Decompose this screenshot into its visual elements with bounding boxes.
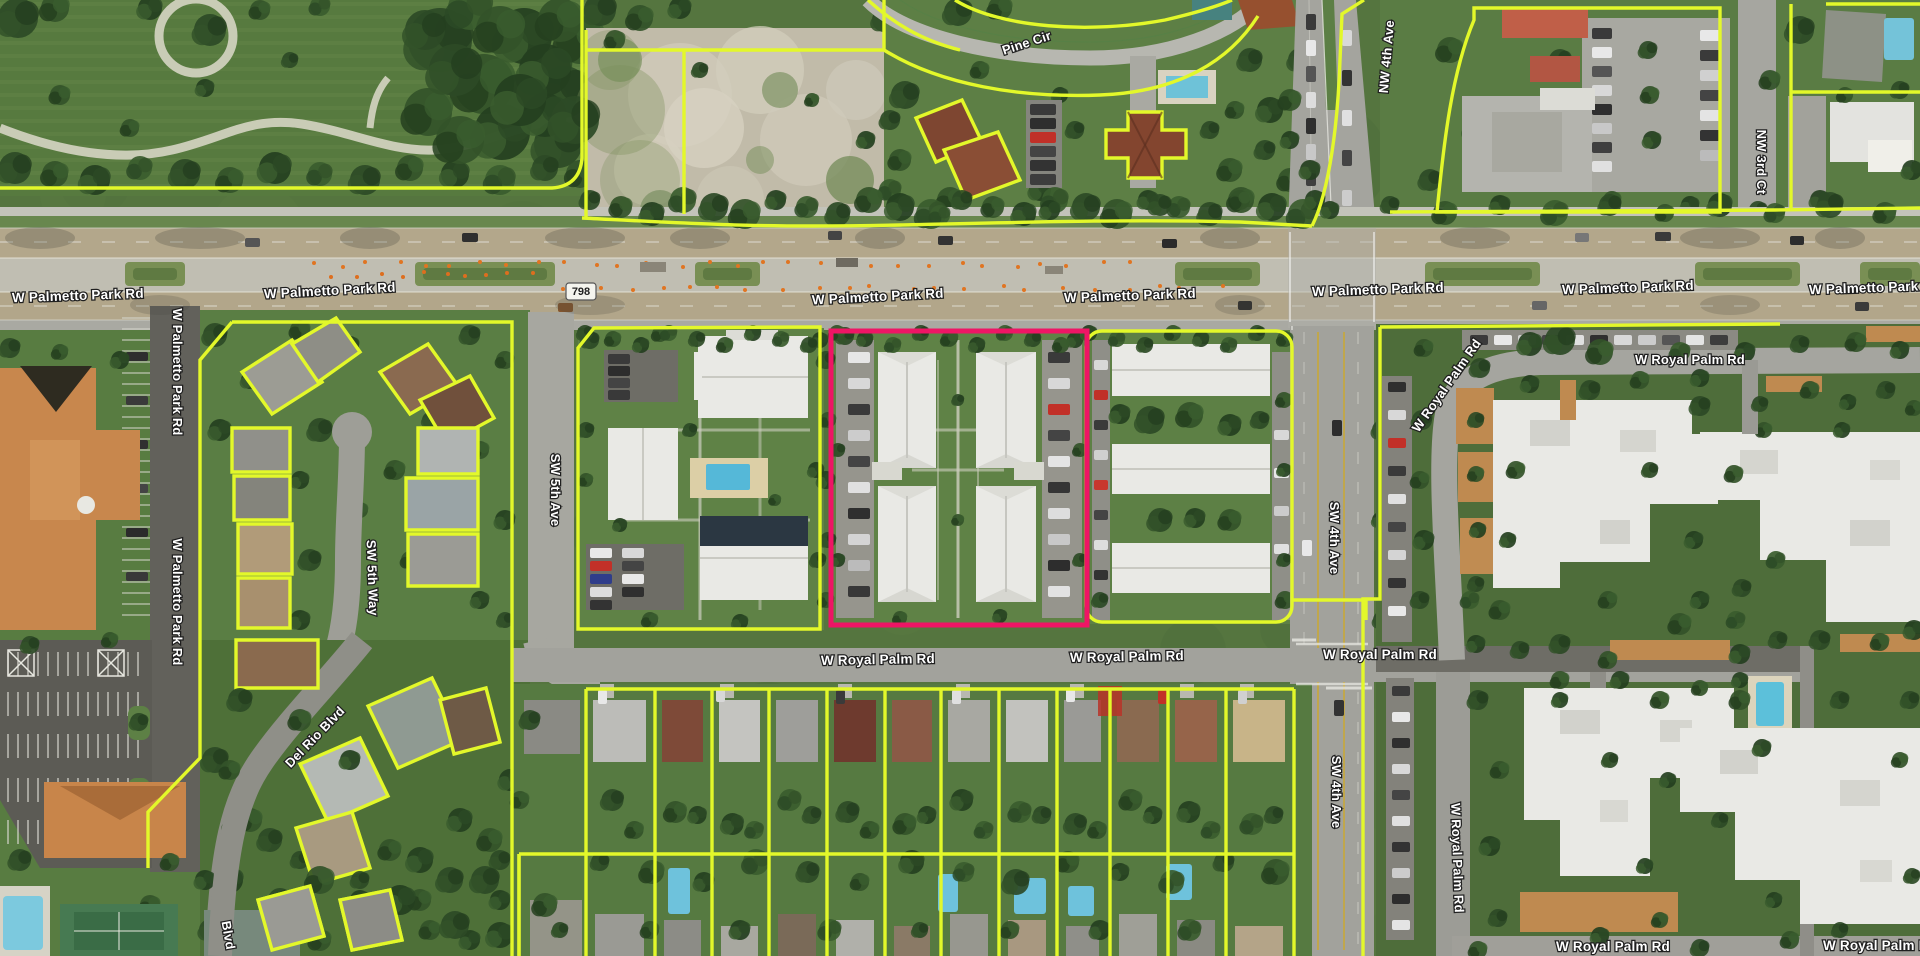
svg-text:SW 5th Ave: SW 5th Ave: [548, 454, 563, 527]
svg-text:798: 798: [572, 286, 590, 298]
svg-text:SW 4th Ave: SW 4th Ave: [1329, 756, 1344, 829]
svg-text:W Palmetto Park Rd: W Palmetto Park Rd: [170, 538, 185, 665]
svg-text:W Palmetto Park Rd: W Palmetto Park Rd: [170, 308, 185, 435]
svg-text:W Royal Palm Rd: W Royal Palm Rd: [1635, 352, 1745, 367]
svg-text:SW 5th Way: SW 5th Way: [364, 540, 382, 617]
svg-text:W Royal Palm Rd: W Royal Palm Rd: [1823, 938, 1920, 953]
svg-text:W Royal Palm Rd: W Royal Palm Rd: [1323, 647, 1437, 662]
svg-text:W Royal Palm Rd: W Royal Palm Rd: [821, 651, 935, 668]
svg-text:W Royal Palm Rd: W Royal Palm Rd: [1070, 648, 1184, 665]
svg-text:W Royal Palm Rd: W Royal Palm Rd: [1556, 939, 1670, 954]
svg-text:NW 3rd Ct: NW 3rd Ct: [1754, 130, 1769, 195]
svg-text:SW 4th Ave: SW 4th Ave: [1327, 502, 1342, 575]
